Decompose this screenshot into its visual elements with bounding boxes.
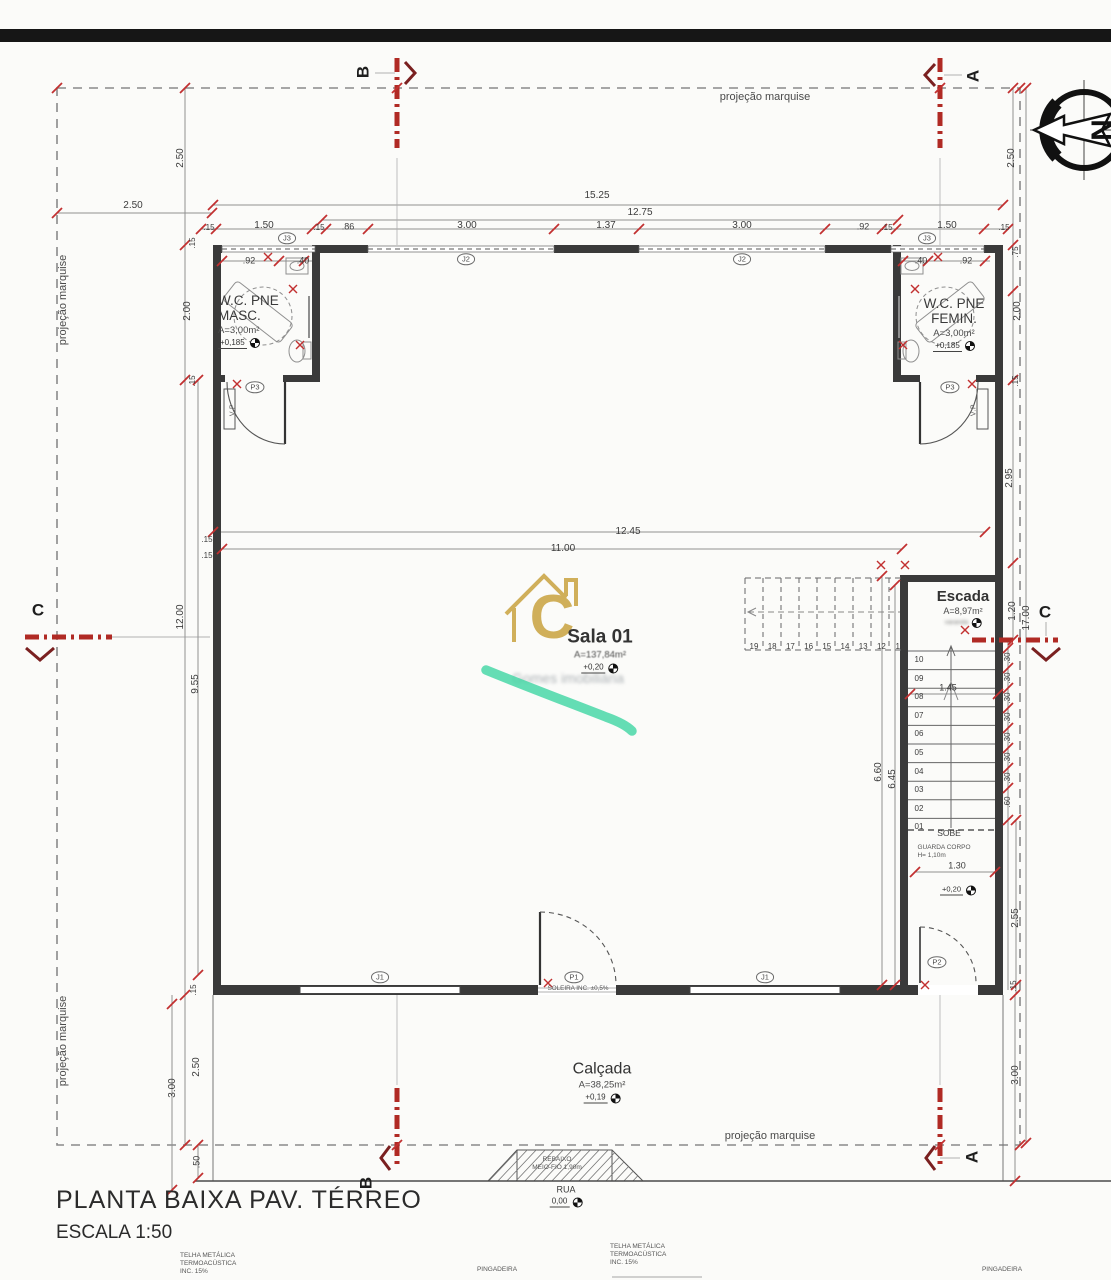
section-marker-a-bottom: A bbox=[964, 1151, 981, 1163]
opening-tag: J3 bbox=[278, 232, 296, 244]
room-name: W.C. PNE bbox=[904, 297, 1004, 312]
dimension-label: 12.75 bbox=[627, 208, 652, 218]
room-area: A=3,00m² bbox=[218, 325, 322, 336]
dimension-label: .30 bbox=[1004, 712, 1012, 723]
dimension-label: 2.00 bbox=[183, 301, 193, 320]
level-value: +0,185 bbox=[218, 338, 247, 349]
dimension-label: .15 bbox=[201, 536, 212, 544]
room-area: A=38,25m² bbox=[573, 1080, 632, 1091]
stair-step-number: 02 bbox=[915, 805, 924, 813]
dimension-label: .15 bbox=[313, 224, 324, 232]
marquise-label-bottom: projeção marquise bbox=[725, 1130, 816, 1142]
stair-step-number: 07 bbox=[915, 712, 924, 720]
dimension-label: .30 bbox=[1004, 672, 1012, 683]
marquise-label-left-top: projeção marquise bbox=[57, 255, 69, 346]
dimension-label: 12.45 bbox=[615, 527, 640, 537]
telha-line2: TERMOACÚSTICA bbox=[180, 1260, 236, 1268]
telha-note-right: TELHA METÁLICA TERMOACÚSTICA INC. 15% bbox=[610, 1243, 666, 1267]
opening-tag: V.P bbox=[971, 404, 978, 416]
stair-step-number: 08 bbox=[915, 693, 924, 701]
stair-step-number: 10 bbox=[915, 656, 924, 664]
dimension-label: 1.20 bbox=[1008, 601, 1018, 620]
rua-level: RUA 0,00 bbox=[550, 1185, 583, 1208]
dimension-label: 2.95 bbox=[1005, 468, 1015, 487]
stair-step-number: 04 bbox=[915, 768, 924, 776]
stair-step-number: 11 bbox=[895, 643, 903, 651]
stair-step-number: 03 bbox=[915, 786, 924, 794]
wc-fixtures bbox=[222, 258, 988, 429]
dimension-label: .15 bbox=[998, 224, 1009, 232]
level-value: +0,185 bbox=[933, 341, 962, 352]
dimension-label: 12.00 bbox=[176, 604, 186, 629]
room-area: A=3,00m² bbox=[904, 328, 1004, 339]
stair-step-number: 06 bbox=[915, 730, 924, 738]
marquise-label-left-bottom: projeção marquise bbox=[57, 996, 69, 1087]
stair-step-number: 12 bbox=[877, 643, 886, 651]
room-name: Calçada bbox=[573, 1061, 632, 1079]
level-marker-icon bbox=[609, 663, 619, 673]
title-block: PLANTA BAIXA PAV. TÉRREO ESCALA 1:50 bbox=[56, 1186, 422, 1244]
dimension-label: 1.50 bbox=[254, 221, 273, 231]
room-name: W.C. PNE bbox=[218, 294, 322, 309]
room-sala: Sala 01 A=137,84m² +0,20 bbox=[567, 627, 633, 674]
room-name: MASC. bbox=[218, 309, 322, 324]
walls bbox=[213, 245, 1003, 995]
guarda-corpo-note: GUARDA CORPO H= 1,10m bbox=[917, 844, 970, 860]
dimension-label: .40 bbox=[915, 257, 928, 266]
dimension-label: 3.00 bbox=[732, 221, 751, 231]
telha-line1: TELHA METÁLICA bbox=[180, 1252, 236, 1260]
level-marker-icon bbox=[250, 338, 260, 348]
room-name: Sala 01 bbox=[567, 627, 633, 649]
guarda-corpo-line1: GUARDA CORPO bbox=[917, 844, 970, 852]
stair-step-number: 19 bbox=[750, 643, 759, 651]
dimension-label: .15 bbox=[190, 984, 198, 995]
varanda-note: varanda bbox=[945, 619, 969, 627]
opening-tag: J2 bbox=[733, 253, 751, 265]
telha-note-left: TELHA METÁLICA TERMOACÚSTICA INC. 15% bbox=[180, 1252, 236, 1276]
opening-tag: J1 bbox=[371, 971, 389, 983]
section-marker-a-top: A bbox=[965, 70, 982, 82]
opening-tag: P3 bbox=[940, 381, 959, 393]
north-letter: N bbox=[1086, 119, 1111, 141]
dimension-label: 2.50 bbox=[123, 201, 142, 211]
section-marker-c-left: C bbox=[32, 602, 44, 619]
rebaixo-note: REBAIXO MEIO-FIO 1,90m bbox=[532, 1156, 581, 1172]
opening-tag: V.P bbox=[230, 404, 237, 416]
dimension-label: .60 bbox=[1004, 796, 1012, 807]
dimension-label: .15 bbox=[201, 552, 212, 560]
dimension-label: .15 bbox=[1012, 375, 1020, 386]
north-compass-icon: N bbox=[1030, 80, 1111, 180]
dimension-label: .30 bbox=[1004, 732, 1012, 743]
dimension-label: 1.50 bbox=[937, 221, 956, 231]
stair-step-number: 17 bbox=[786, 643, 795, 651]
stair-step-number: 18 bbox=[768, 643, 777, 651]
stair-step-number: 13 bbox=[859, 643, 868, 651]
level-value: +0,19 bbox=[583, 1093, 607, 1104]
telha-line2: TERMOACÚSTICA bbox=[610, 1251, 666, 1259]
opening-tag: P1 bbox=[564, 971, 583, 983]
dimension-label: 6.60 bbox=[874, 762, 884, 781]
level-marker-icon bbox=[971, 618, 981, 628]
room-wc-fem: W.C. PNE FEMIN. A=3,00m² +0,185 bbox=[904, 297, 1004, 352]
dimension-label: 3.00 bbox=[1011, 1065, 1021, 1084]
dimension-label: 11.00 bbox=[551, 544, 575, 554]
dimension-label: .15 bbox=[189, 237, 197, 248]
dimension-label: .50 bbox=[193, 1156, 202, 1169]
level-value: 0,00 bbox=[550, 1197, 570, 1208]
room-escada: Escada A=8,97m² varanda bbox=[937, 588, 990, 628]
dimension-label: 3.00 bbox=[457, 221, 476, 231]
guarda-corpo-line2: H= 1,10m bbox=[917, 852, 970, 860]
dimension-label: 2.50 bbox=[176, 148, 186, 167]
stair-step-number: 14 bbox=[841, 643, 850, 651]
room-area: A=137,84m² bbox=[567, 650, 633, 661]
section-marker-b-top: B bbox=[355, 66, 372, 78]
pingadeira-note-left: PINGADEIRA bbox=[477, 1266, 517, 1274]
doors bbox=[227, 382, 978, 992]
dimension-label: 1.45 bbox=[939, 684, 957, 693]
stair-step-number: 05 bbox=[915, 749, 924, 757]
dimension-label: 3.00 bbox=[168, 1078, 178, 1097]
opening-tag: P3 bbox=[245, 381, 264, 393]
dimension-label: 17.00 bbox=[1022, 605, 1032, 630]
dimension-label: .30 bbox=[1004, 752, 1012, 763]
dimension-label: 2.50 bbox=[192, 1057, 202, 1076]
room-name: FEMIN. bbox=[904, 312, 1004, 327]
dimension-label: .15 bbox=[189, 375, 197, 386]
rebaixo-line1: REBAIXO bbox=[532, 1156, 581, 1164]
opening-tag: J2 bbox=[457, 253, 475, 265]
level-value: +0,20 bbox=[940, 885, 963, 896]
dimension-label: .92 bbox=[960, 257, 973, 266]
dimension-label: 2.55 bbox=[1011, 908, 1021, 927]
stair-step-number: 16 bbox=[804, 643, 813, 651]
room-wc-masc: W.C. PNE MASC. A=3,00m² +0,185 bbox=[215, 294, 322, 349]
dimension-label: .15 bbox=[1010, 980, 1018, 991]
soleira-note: SOLEIRA INC. ±0,5% bbox=[548, 986, 609, 992]
dimension-label: .86 bbox=[342, 223, 355, 232]
stair-step-number: 09 bbox=[915, 675, 924, 683]
marquise-label-top: projeção marquise bbox=[720, 91, 811, 103]
dimension-label: .15 bbox=[881, 224, 892, 232]
stair-step-number: 01 bbox=[915, 823, 924, 831]
dimension-label: 1.37 bbox=[596, 221, 615, 231]
dimension-label: .30 bbox=[1004, 692, 1012, 703]
dimension-label: .15 bbox=[203, 224, 214, 232]
sobe-label: SOBE bbox=[937, 829, 961, 838]
dimension-label: .40 bbox=[297, 257, 310, 266]
dimension-label: 1.30 bbox=[948, 862, 966, 871]
drawing-title: PLANTA BAIXA PAV. TÉRREO bbox=[56, 1186, 422, 1215]
rebaixo-line2: MEIO-FIO 1,90m bbox=[532, 1164, 581, 1172]
dimension-label: 15.25 bbox=[584, 191, 609, 201]
level-marker-icon bbox=[572, 1197, 582, 1207]
section-marker-c-right: C bbox=[1039, 604, 1051, 621]
dimension-label: 2.00 bbox=[1013, 301, 1023, 320]
varanda-level: +0,20 bbox=[940, 883, 976, 896]
drawing-scale: ESCALA 1:50 bbox=[56, 1222, 422, 1244]
telha-line1: TELHA METÁLICA bbox=[610, 1243, 666, 1251]
opening-tag: J3 bbox=[918, 232, 936, 244]
dimension-label: .75 bbox=[1012, 246, 1020, 257]
dimension-label: .92 bbox=[243, 257, 256, 266]
telha-line3: INC. 15% bbox=[180, 1268, 236, 1276]
stair-step-number: 15 bbox=[822, 643, 831, 651]
level-value: +0,20 bbox=[581, 663, 605, 674]
opening-tag: J1 bbox=[756, 971, 774, 983]
dimension-label: .92 bbox=[857, 223, 870, 232]
dimension-label: .30 bbox=[1004, 772, 1012, 783]
level-marker-icon bbox=[966, 885, 976, 895]
windows bbox=[222, 246, 984, 995]
dimension-label: .30 bbox=[1004, 652, 1012, 663]
room-area: A=8,97m² bbox=[937, 606, 990, 616]
dimension-label: 2.50 bbox=[1007, 148, 1017, 167]
level-marker-icon bbox=[611, 1093, 621, 1103]
room-calcada: Calçada A=38,25m² +0,19 bbox=[573, 1061, 632, 1104]
pingadeira-note-right: PINGADEIRA bbox=[982, 1266, 1022, 1274]
level-marker-icon bbox=[965, 341, 975, 351]
telha-line3: INC. 15% bbox=[610, 1259, 666, 1267]
dimension-label: 6.45 bbox=[888, 769, 898, 788]
room-name: Escada bbox=[937, 588, 990, 605]
floor-plan-canvas: N C Gomes imobiliária 2.5015.2512.75.151… bbox=[0, 0, 1111, 1280]
red-cross-marks bbox=[233, 253, 976, 989]
opening-tag: P2 bbox=[927, 956, 946, 968]
dimension-label: 9.55 bbox=[191, 674, 201, 693]
street-label: RUA bbox=[550, 1185, 583, 1195]
